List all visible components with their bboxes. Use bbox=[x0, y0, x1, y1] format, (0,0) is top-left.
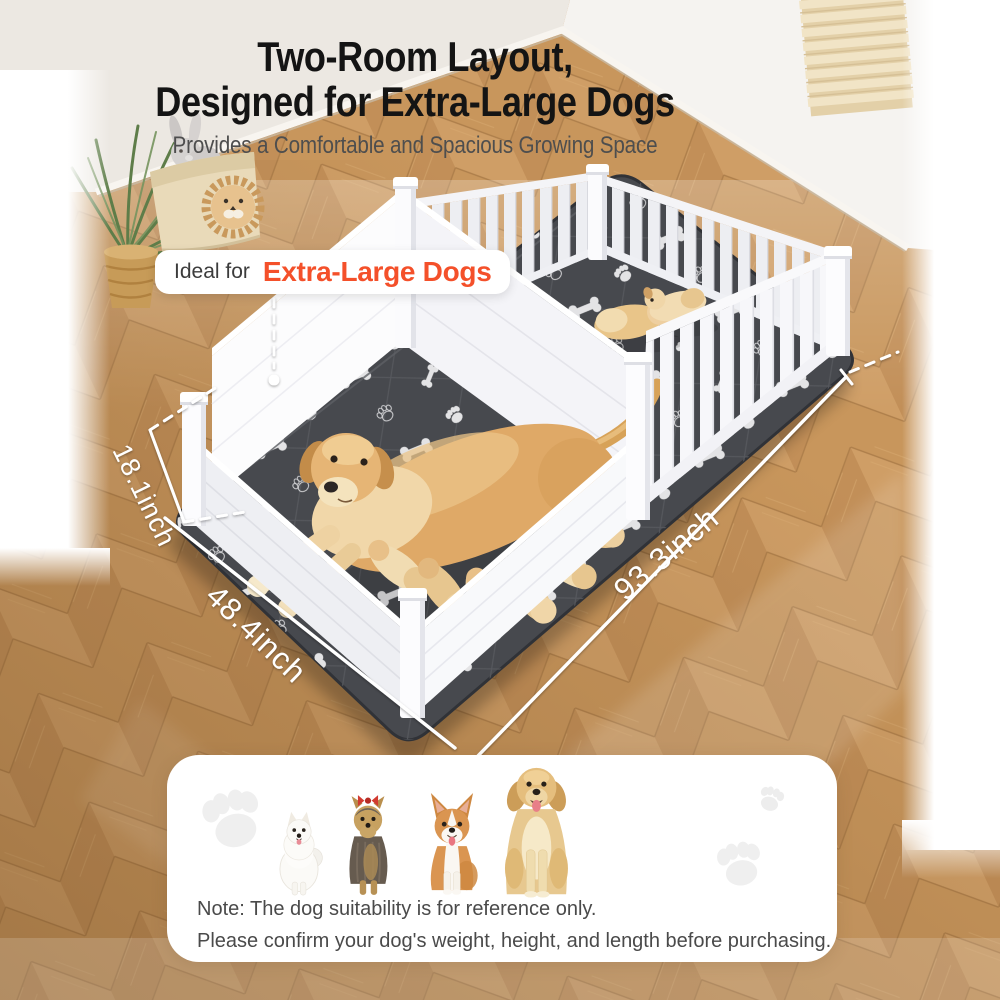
suitability-note: Note: The dog suitability is for referen… bbox=[197, 893, 831, 957]
yorkshire-terrier-photo bbox=[336, 790, 400, 900]
ideal-for-badge: Ideal for Extra-Large Dogs bbox=[155, 250, 510, 294]
page-title: Two-Room Layout, Designed for Extra-Larg… bbox=[58, 34, 772, 125]
header: Two-Room Layout, Designed for Extra-Larg… bbox=[58, 34, 772, 160]
paw-print-icon bbox=[751, 779, 791, 819]
note-line-2: Please confirm your dog's weight, height… bbox=[197, 925, 831, 957]
badge-prefix: Ideal for bbox=[174, 260, 250, 284]
corgi-photo bbox=[419, 785, 485, 900]
paw-print-icon bbox=[706, 830, 773, 897]
paw-print-icon bbox=[187, 773, 279, 865]
post bbox=[824, 246, 852, 356]
golden-retriever-photo bbox=[492, 753, 580, 905]
title-line-2: Designed for Extra-Large Dogs bbox=[58, 79, 772, 124]
badge-pointer-dot bbox=[269, 375, 280, 386]
post bbox=[624, 352, 652, 520]
pomeranian-photo bbox=[273, 800, 325, 900]
post bbox=[586, 164, 609, 260]
dog-size-chart-card: Note: The dog suitability is for referen… bbox=[167, 755, 837, 962]
badge-highlight: Extra-Large Dogs bbox=[263, 256, 492, 288]
page-subtitle: Provides a Comfortable and Spacious Grow… bbox=[58, 132, 772, 160]
note-line-1: Note: The dog suitability is for referen… bbox=[197, 893, 831, 925]
post bbox=[180, 392, 208, 526]
title-line-1: Two-Room Layout, bbox=[58, 34, 772, 79]
product-marketing-image: 18.1inch 48.4inch 93.3inch Two-Room Layo… bbox=[0, 0, 1000, 1000]
window-blinds-icon bbox=[799, 0, 915, 116]
post bbox=[398, 588, 427, 718]
